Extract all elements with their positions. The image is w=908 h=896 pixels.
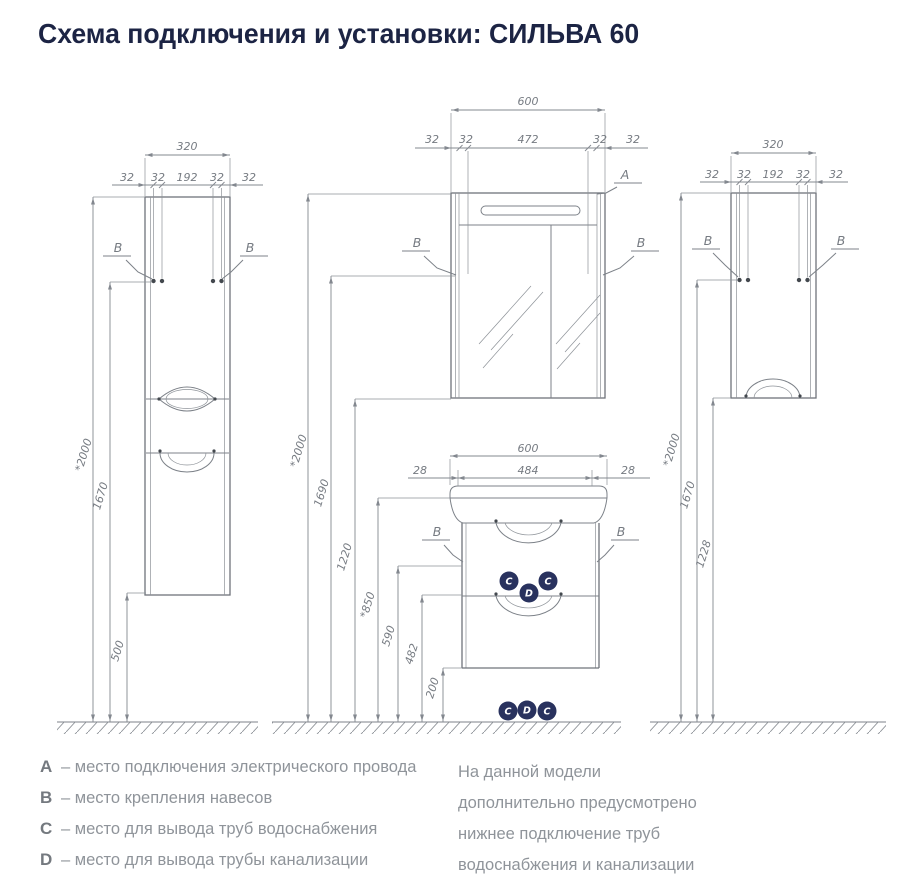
dim-mirror-sub: 32	[425, 133, 439, 146]
dim-vanity-sub: 28	[621, 464, 635, 477]
badge-c: C	[544, 707, 551, 718]
badge-d: D	[523, 706, 531, 717]
left-cabinet-drawing: 320 32 32 192 32 32 B B *2000 1670 500	[73, 140, 268, 722]
dim-right-sub: 32	[737, 168, 751, 181]
dim-center-mirror-bottom: 1220	[334, 542, 355, 573]
center-height-dimensions: *2000 1690 1220 *850 590 482 200	[288, 194, 462, 722]
right-cabinet-drawing: 320 32 32 192 32 32 B B *2000 1670 1228	[661, 138, 859, 722]
dim-left-width: 320	[177, 140, 198, 153]
badge-c: C	[506, 577, 513, 588]
light-slot	[481, 206, 580, 215]
dim-left-sub: 32	[120, 171, 134, 184]
dim-left-total-height: *2000	[73, 437, 95, 473]
note-line: водоснабжения и канализации	[458, 850, 778, 881]
label-b: B	[114, 240, 123, 255]
dim-left-sub: 32	[151, 171, 165, 184]
floor-line	[57, 722, 886, 734]
legend-key-b: B	[40, 788, 61, 808]
note-line: нижнее подключение труб	[458, 819, 778, 850]
legend-key-c: C	[40, 819, 61, 839]
dim-right-total-height: *2000	[661, 432, 683, 468]
legend-item-a: A – место подключения электрического про…	[40, 757, 450, 788]
dim-right-width: 320	[763, 138, 784, 151]
dim-right-sub: 192	[763, 168, 784, 181]
badge-d: D	[525, 589, 533, 600]
dim-right-bottom-height: 1228	[693, 539, 714, 570]
dim-vanity-sub: 28	[413, 464, 427, 477]
dim-mirror-width: 600	[518, 95, 539, 108]
label-b: B	[433, 524, 442, 539]
legend-item-c: C – место для вывода труб водоснабжения	[40, 819, 450, 850]
dim-right-sub: 32	[829, 168, 843, 181]
dim-right-hang-height: 1670	[677, 480, 698, 511]
dim-mirror-sub: 32	[626, 133, 640, 146]
dim-mirror-sub: 32	[593, 133, 607, 146]
water-outlet-badges-upper: C C D	[500, 572, 558, 603]
dim-center-total: *2000	[288, 433, 310, 469]
model-note: На данной модели дополнительно предусмот…	[458, 757, 778, 881]
legend-text-c: – место для вывода труб водоснабжения	[61, 820, 377, 839]
label-b: B	[617, 524, 626, 539]
dim-center-outlet-d: 482	[402, 642, 421, 666]
legend-item-b: B – место крепления навесов	[40, 788, 450, 819]
dim-center-outlet-c: 590	[379, 624, 398, 648]
mirror-cabinet-drawing: 600 32 32 472 32 32 A B B	[402, 95, 659, 398]
page-title: Схема подключения и установки: СИЛЬВА 60	[38, 18, 639, 50]
label-b: B	[413, 235, 422, 250]
legend-text-a: – место подключения электрического прово…	[61, 758, 416, 777]
note-line: На данной модели	[458, 757, 778, 788]
dim-left-sub: 192	[177, 171, 198, 184]
note-line: дополнительно предусмотрено	[458, 788, 778, 819]
dim-vanity-sub: 484	[518, 464, 539, 477]
label-b: B	[837, 233, 846, 248]
label-b: B	[246, 240, 255, 255]
water-outlet-badges-floor: C D C	[499, 701, 557, 721]
dim-mirror-sub: 472	[518, 133, 539, 146]
legend-key-d: D	[40, 850, 61, 870]
label-b: B	[637, 235, 646, 250]
dim-left-sub: 32	[242, 171, 256, 184]
dim-left-sub: 32	[210, 171, 224, 184]
legend-text-b: – место крепления навесов	[61, 789, 272, 808]
badge-c: C	[545, 577, 552, 588]
legend-text-d: – место для вывода трубы канализации	[61, 851, 368, 870]
dim-center-bottom: 200	[423, 676, 442, 700]
vanity-drawing: 600 28 484 28 B B C C D C D	[408, 442, 650, 721]
label-a: A	[620, 167, 630, 182]
dim-left-bottom-height: 500	[108, 639, 127, 663]
dim-center-basin-top: *850	[358, 590, 378, 619]
installation-scheme-page: 320 32 32 192 32 32 B B *2000 1670 500	[0, 0, 908, 896]
legend-key-a: A	[40, 757, 61, 777]
badge-c: C	[505, 707, 512, 718]
dim-mirror-sub: 32	[459, 133, 473, 146]
dim-center-mirror-hang: 1690	[311, 478, 332, 509]
dim-vanity-width: 600	[518, 442, 539, 455]
label-b: B	[704, 233, 713, 248]
legend-item-d: D – место для вывода трубы канализации	[40, 850, 450, 881]
dim-right-sub: 32	[796, 168, 810, 181]
legend: A – место подключения электрического про…	[40, 757, 450, 881]
dim-right-sub: 32	[705, 168, 719, 181]
